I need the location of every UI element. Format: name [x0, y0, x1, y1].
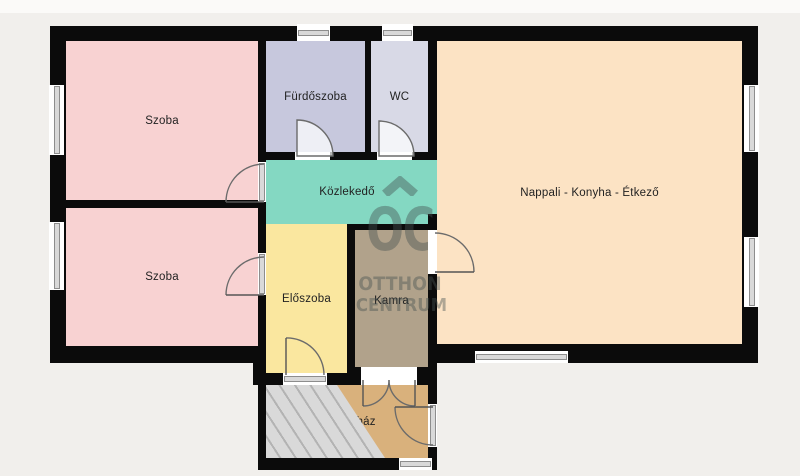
room-label-szoba-bottom: Szoba: [145, 271, 179, 283]
room-label-nappali: Nappali - Konyha - Étkező: [520, 187, 659, 199]
watermark-line2: CENTRUM: [356, 297, 444, 315]
room-label-eloszoba: Előszoba: [282, 293, 331, 305]
window-szoba-top-left: [49, 85, 64, 155]
room-label-furdoszoba: Fürdőszoba: [284, 91, 347, 103]
room-eloszoba: Előszoba: [266, 224, 347, 373]
watermark-monogram: OC: [364, 200, 435, 260]
door-opening-szoba-bottom: [258, 253, 266, 295]
window-szoba-bottom-left: [49, 222, 64, 290]
door-opening-furdoszoba: [295, 152, 330, 160]
window-nappali-right-1: [744, 85, 759, 152]
door-opening-kamra-nappali: [428, 230, 437, 274]
room-szoba-top: Szoba: [66, 41, 258, 200]
room-szoba-bottom: Szoba: [66, 208, 258, 346]
room-nappali-konyha-etkezo: Nappali - Konyha - Étkező: [437, 41, 742, 344]
door-opening-lepcsohaz-right: [428, 404, 437, 447]
room-furdoszoba: Fürdőszoba: [266, 41, 365, 152]
window-furdoszoba-top: [297, 24, 330, 41]
double-door-opening-kamra-lepcsohaz: [361, 367, 417, 385]
room-wc: WC: [371, 41, 428, 152]
door-opening-wc: [377, 152, 412, 160]
door-opening-szoba-top: [258, 162, 266, 202]
page-top-strip: [0, 0, 800, 13]
watermark-line1: OTTHON: [356, 275, 444, 294]
window-lepcsohaz-bottom: [399, 458, 432, 470]
room-label-szoba-top: Szoba: [145, 115, 179, 127]
threshold-eloszoba-entrance: [283, 373, 327, 385]
floorplan-canvas: Szoba Szoba Fürdőszoba WC Közlekedő Elős…: [0, 0, 800, 476]
window-nappali-right-2: [744, 237, 759, 307]
room-label-wc: WC: [390, 91, 410, 103]
roof-caret-icon: [381, 176, 419, 196]
window-wc-top: [382, 24, 413, 41]
window-nappali-bottom: [475, 351, 568, 363]
